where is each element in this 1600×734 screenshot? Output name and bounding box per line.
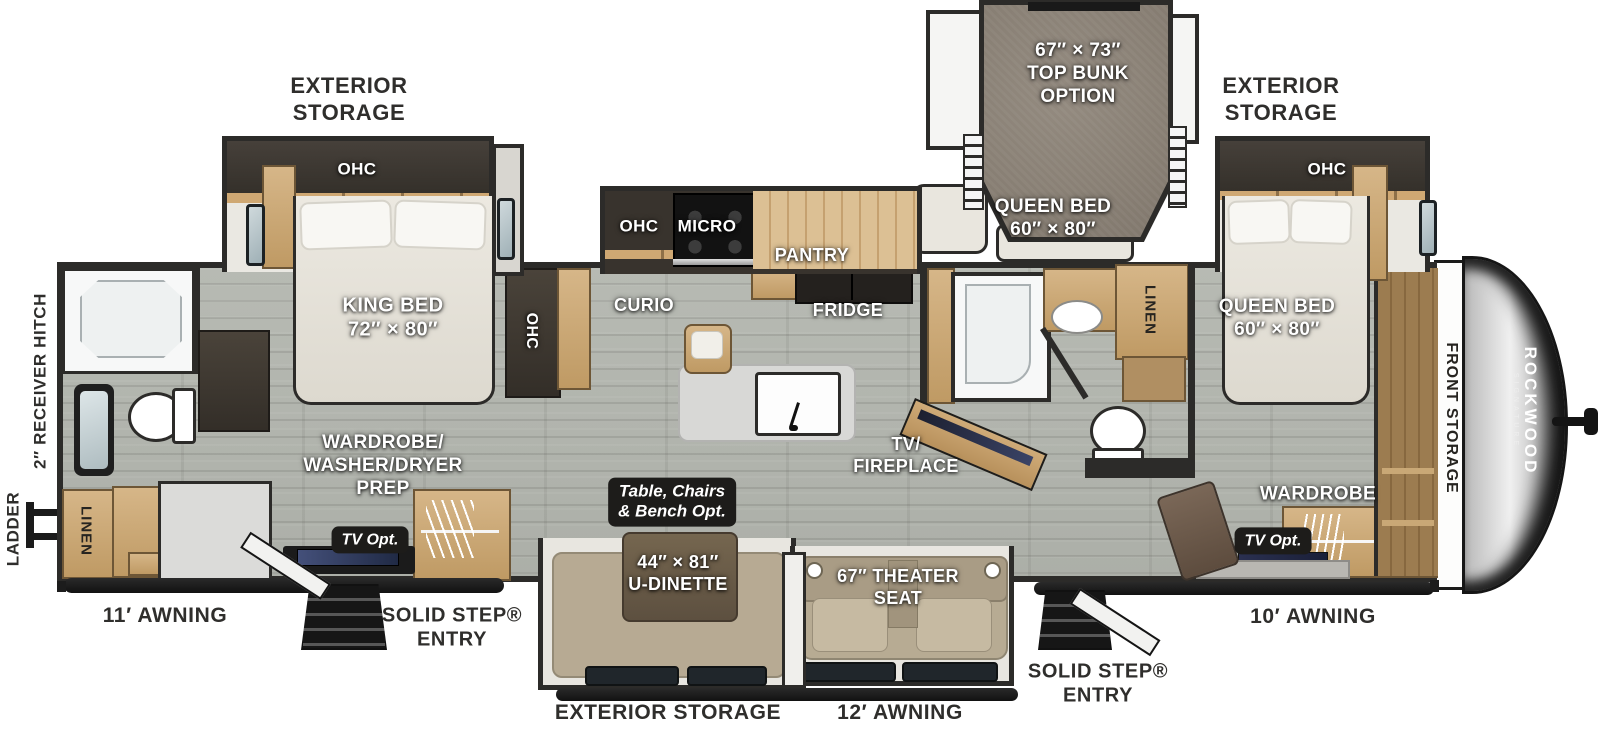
label-receiver-hitch: 2″ RECEIVER HITCH	[31, 293, 52, 469]
rear-bath-mirror-glass	[80, 391, 108, 469]
queen-slide-window	[1419, 200, 1437, 256]
label-dinette-option: Table, Chairs & Bench Opt.	[608, 478, 736, 527]
label-fridge: FRIDGE	[813, 300, 883, 322]
label-mid-linen: LINEN	[1142, 285, 1159, 335]
queen-pillow-left	[1227, 199, 1290, 245]
label-curio: CURIO	[614, 295, 674, 317]
label-u-dinette: 44″ × 81″ U-DINETTE	[628, 552, 728, 596]
island-stool-cushion	[691, 331, 723, 359]
label-wd-prep: WARDROBE/ WASHER/DRYER PREP	[303, 431, 462, 501]
brand-logo: ROCKWOOD SIGNATURE	[1500, 321, 1552, 501]
curio-cabinet	[557, 268, 591, 390]
king-pillow-left	[299, 199, 393, 250]
label-exterior-storage-front: EXTERIOR STORAGE	[1222, 73, 1339, 127]
hitch-jack	[1584, 408, 1598, 435]
label-top-bunk-option: 67″ × 73″ TOP BUNK OPTION	[1027, 39, 1129, 109]
mid-shower-glass	[965, 284, 1031, 384]
wd-prep-closet	[158, 481, 272, 583]
brand-name: ROCKWOOD	[1520, 347, 1540, 476]
bunk-ladder-right	[1168, 126, 1187, 208]
awning-rail-front-cap	[1430, 580, 1439, 592]
label-tv-opt-front: TV Opt.	[1235, 527, 1312, 554]
label-king-ohc: OHC	[338, 160, 377, 181]
label-tv-opt-rear: TV Opt.	[332, 526, 409, 553]
rear-toilet-tank	[172, 388, 196, 444]
label-king-bed: KING BED 72″ × 80″	[343, 294, 444, 343]
label-entry-front: SOLID STEP® ENTRY	[1028, 660, 1168, 709]
dinette-window-left	[585, 666, 679, 686]
label-bunk-queen-bed: QUEEN BED 60″ × 80″	[995, 195, 1112, 241]
oven-handle	[673, 259, 753, 265]
label-exterior-storage-bottom: EXTERIOR STORAGE	[555, 700, 781, 726]
theater-cupholder-left	[806, 562, 823, 579]
label-exterior-storage-rear: EXTERIOR STORAGE	[290, 73, 407, 127]
label-kitchen-ohc: OHC	[620, 217, 659, 238]
mid-bath-wall-bottom	[1085, 458, 1195, 478]
mid-bath-sink	[1051, 300, 1103, 334]
mid-linen-shelf	[1122, 356, 1186, 402]
front-storage-bay	[1374, 268, 1438, 576]
theater-window-left	[800, 662, 896, 682]
slide-divider-wall	[782, 552, 806, 688]
label-queen-ohc: OHC	[1308, 160, 1347, 181]
awning-rail-rear-cap	[57, 581, 66, 592]
front-storage-shelf-1	[1382, 468, 1434, 474]
mid-bath-wall-left	[920, 268, 927, 404]
label-hall-ohc: OHC	[521, 313, 541, 350]
label-awning-rear: 11′ AWNING	[103, 603, 228, 629]
label-pantry: PANTRY	[775, 245, 849, 267]
kitchen-ohc-shelf	[605, 250, 675, 259]
label-entry-rear: SOLID STEP® ENTRY	[382, 604, 522, 653]
ladder-icon-rung-top	[32, 509, 58, 516]
bunk-ladder-left	[963, 134, 984, 210]
theater-window-right	[902, 662, 998, 682]
label-kitchen-micro: MICRO	[678, 217, 737, 238]
label-front-wardrobe: WARDROBE	[1260, 482, 1376, 505]
label-rear-linen: LINEN	[78, 506, 95, 556]
ladder-icon-rung-bottom	[32, 533, 58, 540]
king-wardrobe-cabinet	[198, 330, 270, 432]
theater-cupholder-right	[984, 562, 1001, 579]
label-front-storage: FRONT STORAGE	[1442, 342, 1460, 493]
label-ladder: LADDER	[4, 492, 25, 566]
queen-pillow-right	[1289, 199, 1352, 245]
king-slide-window-left	[246, 204, 265, 266]
dinette-window-right	[687, 666, 767, 686]
island-faucet-base	[789, 425, 798, 431]
hanger-closet-hangers	[426, 500, 474, 558]
floorplan-canvas: ROCKWOOD SIGNATURE	[0, 0, 1600, 734]
label-awning-center: 12′ AWNING	[837, 700, 963, 726]
king-slide-cabinet	[262, 165, 296, 269]
mid-bath-wall-right	[1188, 262, 1195, 476]
awning-rail-center	[556, 688, 1018, 701]
awning-rail-rear	[64, 578, 504, 593]
king-slide-window-right	[497, 198, 515, 260]
label-theater-seat: 67″ THEATER SEAT	[837, 566, 959, 610]
king-pillow-right	[393, 199, 487, 250]
front-storage-shelf-2	[1382, 520, 1434, 526]
label-queen-bed: QUEEN BED 60″ × 80″	[1219, 295, 1336, 341]
brand-series: SIGNATURE	[1512, 373, 1519, 449]
rear-shower-glass	[80, 280, 182, 358]
label-tv-fireplace: TV/ FIREPLACE	[853, 434, 959, 478]
label-awning-front: 10′ AWNING	[1250, 604, 1376, 630]
bunk-skylight	[1028, 2, 1140, 11]
